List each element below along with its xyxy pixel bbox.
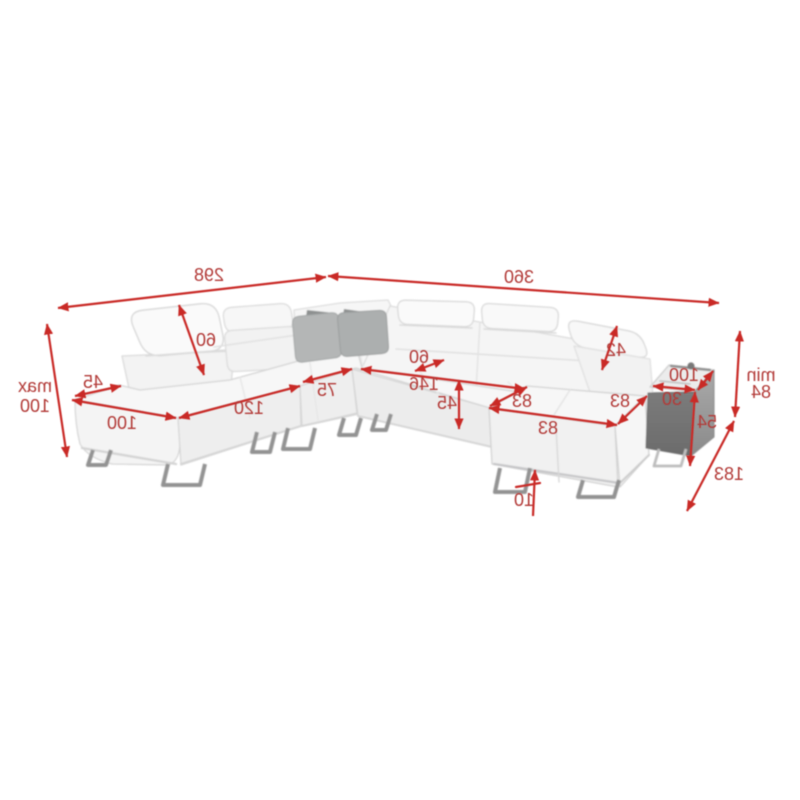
svg-text:183: 183 <box>714 464 744 484</box>
svg-text:42: 42 <box>606 340 626 360</box>
svg-text:45: 45 <box>83 372 103 392</box>
svg-text:83: 83 <box>512 391 532 411</box>
svg-text:10: 10 <box>514 490 534 510</box>
svg-text:100: 100 <box>107 413 137 433</box>
svg-text:max: max <box>18 376 52 396</box>
svg-text:54: 54 <box>697 412 717 432</box>
svg-text:83: 83 <box>610 391 630 411</box>
svg-text:120: 120 <box>234 398 264 418</box>
svg-text:45: 45 <box>437 393 457 413</box>
svg-text:100: 100 <box>669 365 699 385</box>
svg-text:360: 360 <box>504 267 534 287</box>
svg-text:75: 75 <box>317 380 337 400</box>
svg-text:298: 298 <box>194 265 224 285</box>
svg-text:60: 60 <box>196 330 216 350</box>
svg-text:60: 60 <box>409 347 429 367</box>
svg-text:100: 100 <box>20 396 50 416</box>
svg-text:83: 83 <box>538 418 558 438</box>
svg-text:146: 146 <box>409 374 439 394</box>
svg-text:84: 84 <box>751 382 771 402</box>
svg-text:30: 30 <box>662 389 682 409</box>
